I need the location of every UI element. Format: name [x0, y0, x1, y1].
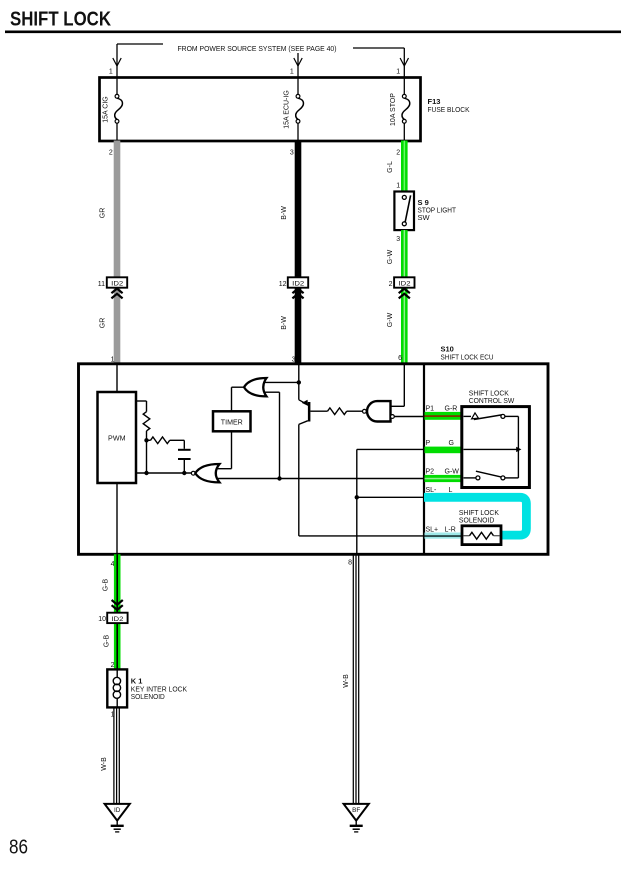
- svg-text:ID2: ID2: [292, 281, 305, 288]
- svg-text:3: 3: [396, 236, 400, 243]
- svg-text:BF: BF: [352, 807, 360, 814]
- svg-text:ID2: ID2: [111, 281, 124, 288]
- svg-text:G-B: G-B: [104, 634, 111, 647]
- svg-text:1: 1: [396, 69, 400, 76]
- svg-text:B-W: B-W: [281, 316, 288, 330]
- svg-text:P: P: [426, 440, 431, 447]
- svg-text:G-W: G-W: [387, 249, 394, 264]
- svg-text:SW: SW: [418, 213, 431, 222]
- svg-text:P2: P2: [426, 469, 435, 476]
- svg-text:FUSE BLOCK: FUSE BLOCK: [428, 105, 470, 114]
- svg-text:3: 3: [292, 357, 296, 364]
- svg-text:15A ECU-IG: 15A ECU-IG: [284, 90, 291, 129]
- svg-text:SL-: SL-: [426, 487, 438, 494]
- svg-text:2: 2: [109, 150, 113, 157]
- svg-text:10A STOP: 10A STOP: [390, 93, 397, 126]
- svg-text:10: 10: [98, 616, 106, 623]
- svg-text:SL+: SL+: [426, 527, 439, 534]
- svg-text:SHIFT LOCK ECU: SHIFT LOCK ECU: [441, 352, 494, 361]
- svg-text:1: 1: [290, 69, 294, 76]
- svg-text:ID: ID: [114, 807, 121, 814]
- svg-text:G-L: G-L: [387, 161, 394, 173]
- svg-text:G-R: G-R: [445, 405, 458, 412]
- svg-text:PWM: PWM: [108, 436, 126, 443]
- svg-text:GR: GR: [100, 208, 107, 219]
- svg-text:W-B: W-B: [343, 674, 350, 688]
- svg-text:TIMER: TIMER: [221, 419, 243, 426]
- svg-text:CONTROL SW: CONTROL SW: [469, 396, 515, 405]
- svg-text:86: 86: [9, 837, 28, 859]
- svg-text:GR: GR: [100, 318, 107, 329]
- svg-text:ID2: ID2: [111, 616, 124, 623]
- svg-text:11: 11: [98, 281, 105, 288]
- svg-text:SOLENOID: SOLENOID: [459, 515, 495, 524]
- svg-text:W-B: W-B: [101, 757, 108, 771]
- svg-text:1: 1: [111, 357, 115, 364]
- svg-text:P1: P1: [426, 405, 435, 412]
- svg-text:8: 8: [348, 560, 352, 567]
- svg-text:ID2: ID2: [399, 281, 412, 288]
- svg-text:1: 1: [109, 69, 113, 76]
- svg-text:2: 2: [111, 662, 115, 669]
- svg-text:1: 1: [396, 183, 400, 190]
- svg-text:SOLENOID: SOLENOID: [131, 692, 166, 701]
- svg-text:L: L: [449, 487, 453, 494]
- svg-text:SHIFT LOCK: SHIFT LOCK: [10, 8, 111, 31]
- svg-text:6: 6: [398, 355, 402, 362]
- svg-text:B-W: B-W: [281, 206, 288, 220]
- svg-text:G-B: G-B: [103, 578, 110, 591]
- svg-text:15A CIG: 15A CIG: [103, 96, 110, 122]
- svg-text:12: 12: [279, 281, 287, 288]
- svg-text:3: 3: [290, 150, 294, 157]
- svg-text:G-W: G-W: [387, 312, 394, 327]
- svg-text:G-W: G-W: [445, 469, 460, 476]
- svg-text:2: 2: [389, 281, 393, 288]
- svg-text:L-R: L-R: [445, 527, 456, 534]
- svg-text:FROM POWER SOURCE SYSTEM (SEE: FROM POWER SOURCE SYSTEM (SEE PAGE 40): [178, 44, 337, 53]
- svg-text:G: G: [449, 440, 454, 447]
- svg-text:2: 2: [396, 150, 400, 157]
